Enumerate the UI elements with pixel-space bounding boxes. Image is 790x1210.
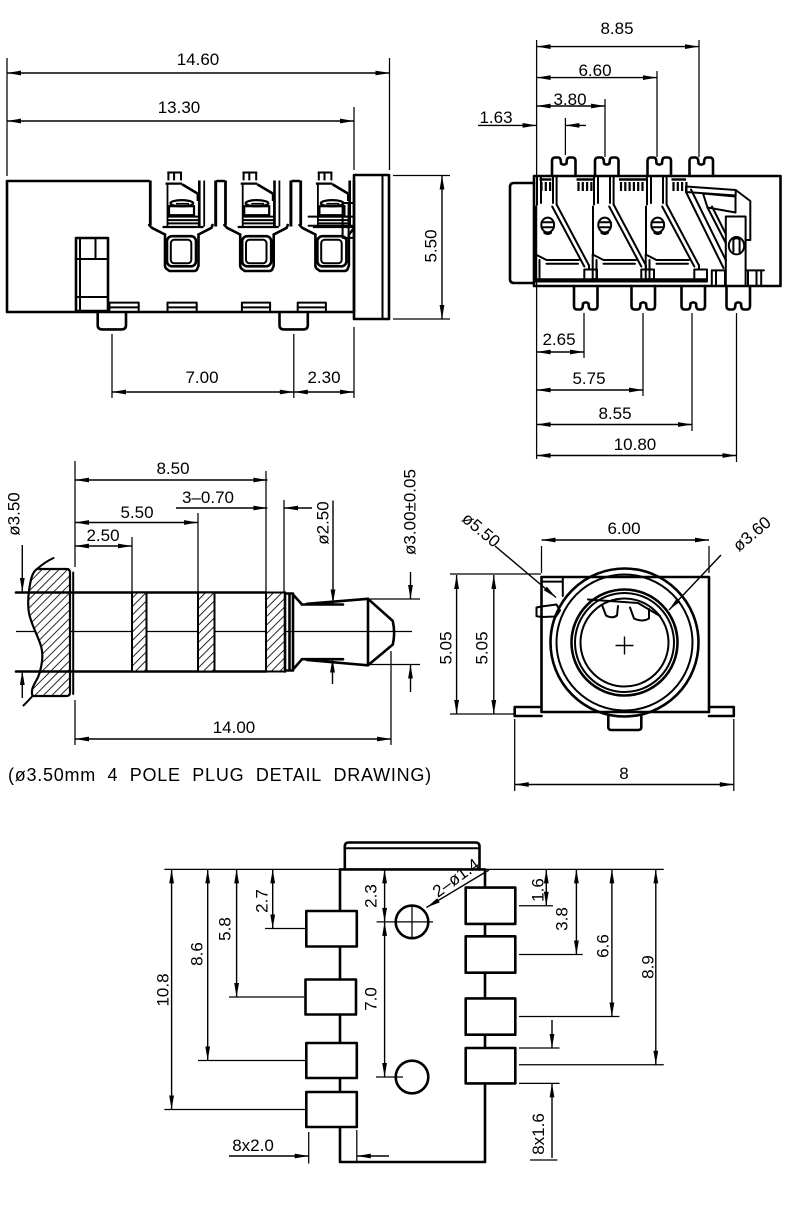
svg-text:8.85: 8.85 <box>600 19 633 38</box>
svg-text:7.0: 7.0 <box>362 987 381 1011</box>
svg-text:8x2.0: 8x2.0 <box>232 1136 274 1155</box>
svg-text:1.63: 1.63 <box>479 108 512 127</box>
svg-text:3.8: 3.8 <box>553 907 572 931</box>
svg-text:6.6: 6.6 <box>594 934 613 958</box>
svg-text:8.55: 8.55 <box>598 404 631 423</box>
svg-text:5.05: 5.05 <box>437 631 456 664</box>
svg-text:2.50: 2.50 <box>86 526 119 545</box>
svg-text:8.50: 8.50 <box>156 459 189 478</box>
svg-text:5.50: 5.50 <box>120 503 153 522</box>
svg-text:5.50: 5.50 <box>422 229 441 262</box>
svg-text:13.30: 13.30 <box>158 98 201 117</box>
svg-text:2.3: 2.3 <box>362 884 381 908</box>
svg-text:3–0.70: 3–0.70 <box>182 488 234 507</box>
svg-text:ø3.50: ø3.50 <box>5 492 24 535</box>
svg-text:10.80: 10.80 <box>614 435 657 454</box>
svg-text:1.6: 1.6 <box>529 878 548 902</box>
svg-text:2.30: 2.30 <box>307 368 340 387</box>
svg-text:5.8: 5.8 <box>216 917 235 941</box>
svg-text:5.75: 5.75 <box>572 369 605 388</box>
svg-text:8.9: 8.9 <box>639 955 658 979</box>
svg-text:8: 8 <box>619 764 628 783</box>
svg-text:14.60: 14.60 <box>177 50 220 69</box>
svg-text:14.00: 14.00 <box>213 718 256 737</box>
svg-text:7.00: 7.00 <box>185 368 218 387</box>
svg-text:ø2.50: ø2.50 <box>314 501 333 544</box>
svg-text:2.7: 2.7 <box>253 889 272 913</box>
svg-text:6.00: 6.00 <box>607 519 640 538</box>
svg-text:(ø3.50mm 4 POLE PLUG DETAI: (ø3.50mm 4 POLE PLUG DETAIL DRAWING) <box>8 765 432 785</box>
svg-text:2.65: 2.65 <box>542 330 575 349</box>
svg-text:ø3.00±0.05: ø3.00±0.05 <box>401 469 420 555</box>
svg-text:10.8: 10.8 <box>154 973 173 1006</box>
svg-text:5.05: 5.05 <box>473 631 492 664</box>
svg-text:8.6: 8.6 <box>188 942 207 966</box>
svg-text:8x1.6: 8x1.6 <box>529 1113 548 1155</box>
